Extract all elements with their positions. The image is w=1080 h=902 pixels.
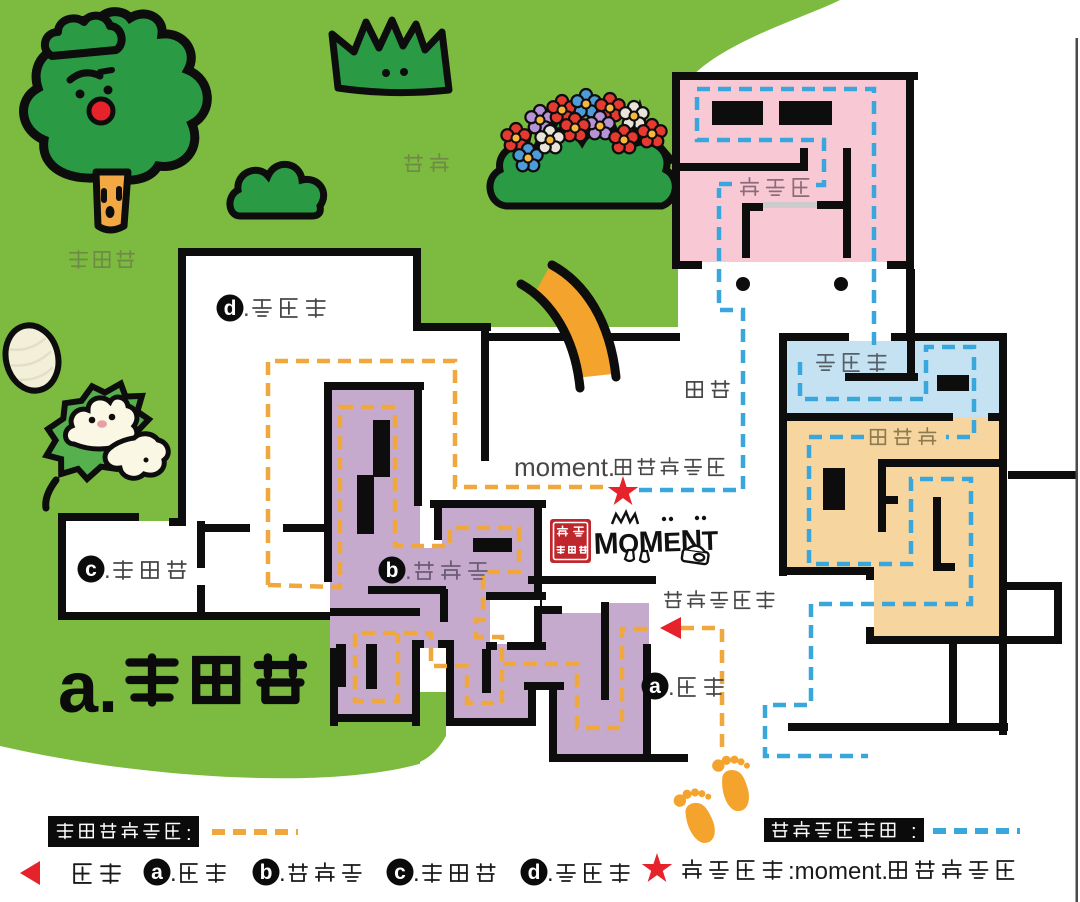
svg-text:.: . <box>104 557 111 584</box>
svg-text::: : <box>186 823 192 845</box>
svg-text:a.: a. <box>58 648 118 728</box>
svg-text:.: . <box>413 860 420 887</box>
svg-text:c: c <box>85 558 97 581</box>
svg-text:moment.: moment. <box>514 452 615 482</box>
svg-text:b: b <box>260 861 273 884</box>
svg-text:.: . <box>405 558 412 585</box>
svg-text:.: . <box>668 674 675 701</box>
svg-text:.: . <box>243 295 250 322</box>
svg-text:c: c <box>394 861 406 884</box>
svg-text:d: d <box>224 297 237 320</box>
svg-text:a: a <box>649 675 661 698</box>
svg-text:.: . <box>170 860 177 887</box>
svg-text:.: . <box>279 860 286 887</box>
svg-text:d: d <box>528 861 541 884</box>
svg-text::: : <box>911 821 917 843</box>
svg-text::moment.: :moment. <box>788 858 888 885</box>
svg-text:b: b <box>386 559 399 582</box>
svg-text:a: a <box>151 861 163 884</box>
svg-text:.: . <box>547 860 554 887</box>
